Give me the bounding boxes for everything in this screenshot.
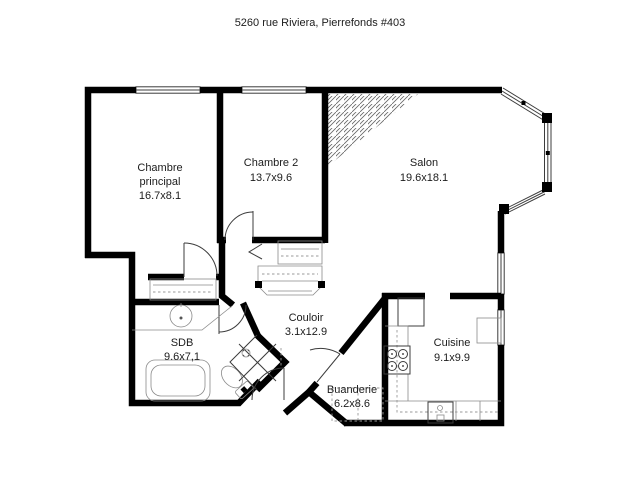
closet	[278, 241, 322, 264]
wall	[257, 335, 285, 390]
room-label-buanderie: Buanderie 6.2x8.6	[327, 384, 377, 410]
walls	[85, 87, 502, 424]
room-dims: 13.7x9.6	[250, 172, 292, 184]
room-label-salon: Salon 19.6x18.1	[400, 157, 448, 184]
room-dims: 19.6x18.1	[400, 172, 448, 184]
room-dims: 6.2x8.6	[334, 398, 370, 410]
floor-plan-page: 5260 rue Riviera, Pierrefonds #403	[0, 0, 640, 480]
hatched-area	[328, 94, 418, 166]
bay-window	[499, 88, 552, 214]
wall	[222, 238, 233, 305]
bay-mullion	[546, 151, 550, 155]
room-labels: Chambre principal 16.7x8.1 Chambre 2 13.…	[137, 157, 470, 410]
plan-title: 5260 rue Riviera, Pierrefonds #403	[235, 17, 406, 29]
room-label-sdb: SDB 9.6x7,1	[164, 337, 200, 363]
window	[136, 87, 200, 93]
room-dims: 16.7x8.1	[139, 190, 181, 202]
room-dims: 9.1x9.9	[434, 352, 470, 364]
room-label-cuisine: Cuisine 9.1x9.9	[434, 337, 471, 364]
door-buanderie	[310, 348, 340, 382]
room-name: SDB	[171, 337, 194, 349]
room-name: Chambre 2	[244, 157, 298, 169]
room-label-couloir: Couloir 3.1x12.9	[285, 312, 327, 338]
room-name: Cuisine	[434, 337, 471, 349]
cabinet-icon	[398, 298, 424, 326]
door-chambre-principal	[184, 243, 217, 277]
room-name: Buanderie	[327, 384, 377, 396]
door-sdb	[219, 305, 246, 334]
bay-mullion	[522, 101, 526, 105]
closet	[255, 266, 325, 295]
floor-plan: 5260 rue Riviera, Pierrefonds #403	[0, 0, 640, 480]
room-label-chambre-2: Chambre 2 13.7x9.6	[244, 157, 298, 184]
bathtub-icon	[146, 360, 210, 401]
windows	[136, 87, 504, 345]
room-name: Couloir	[289, 312, 324, 324]
bay-post	[542, 182, 552, 192]
window	[498, 253, 504, 294]
bay-post	[542, 113, 552, 123]
room-name: principal	[140, 176, 181, 188]
wall	[88, 90, 136, 258]
door-chambre-2	[225, 211, 253, 240]
wall	[243, 303, 258, 336]
room-label-chambre-principal: Chambre principal 16.7x8.1	[137, 162, 182, 202]
room-dims: 3.1x12.9	[285, 326, 327, 338]
room-name: Chambre	[137, 162, 182, 174]
room-name: Salon	[410, 157, 438, 169]
closet	[150, 279, 216, 300]
vanity-sink-icon	[132, 303, 232, 330]
wall	[309, 383, 317, 392]
room-dims: 9.6x7,1	[164, 351, 200, 363]
closets	[150, 241, 325, 300]
wall	[341, 297, 386, 353]
closet-door-chevron	[249, 244, 262, 259]
window	[242, 87, 306, 93]
